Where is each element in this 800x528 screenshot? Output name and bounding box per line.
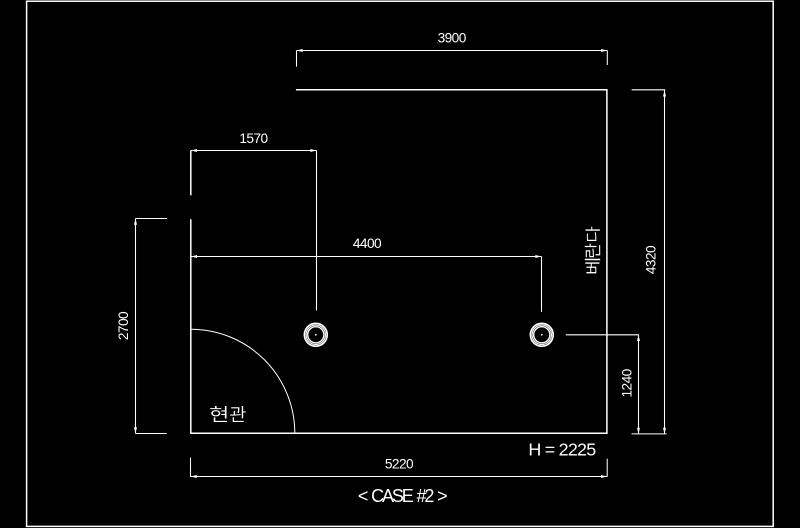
svg-text:1240: 1240 (619, 368, 634, 397)
svg-text:5220: 5220 (385, 457, 414, 472)
svg-text:3900: 3900 (438, 30, 467, 45)
svg-text:H = 2225: H = 2225 (528, 439, 596, 459)
svg-text:< CASE #2 >: < CASE #2 > (358, 486, 447, 506)
svg-text:2700: 2700 (116, 311, 131, 340)
svg-text:4400: 4400 (353, 236, 382, 251)
svg-text:1570: 1570 (239, 131, 268, 146)
svg-text:4320: 4320 (643, 245, 658, 274)
